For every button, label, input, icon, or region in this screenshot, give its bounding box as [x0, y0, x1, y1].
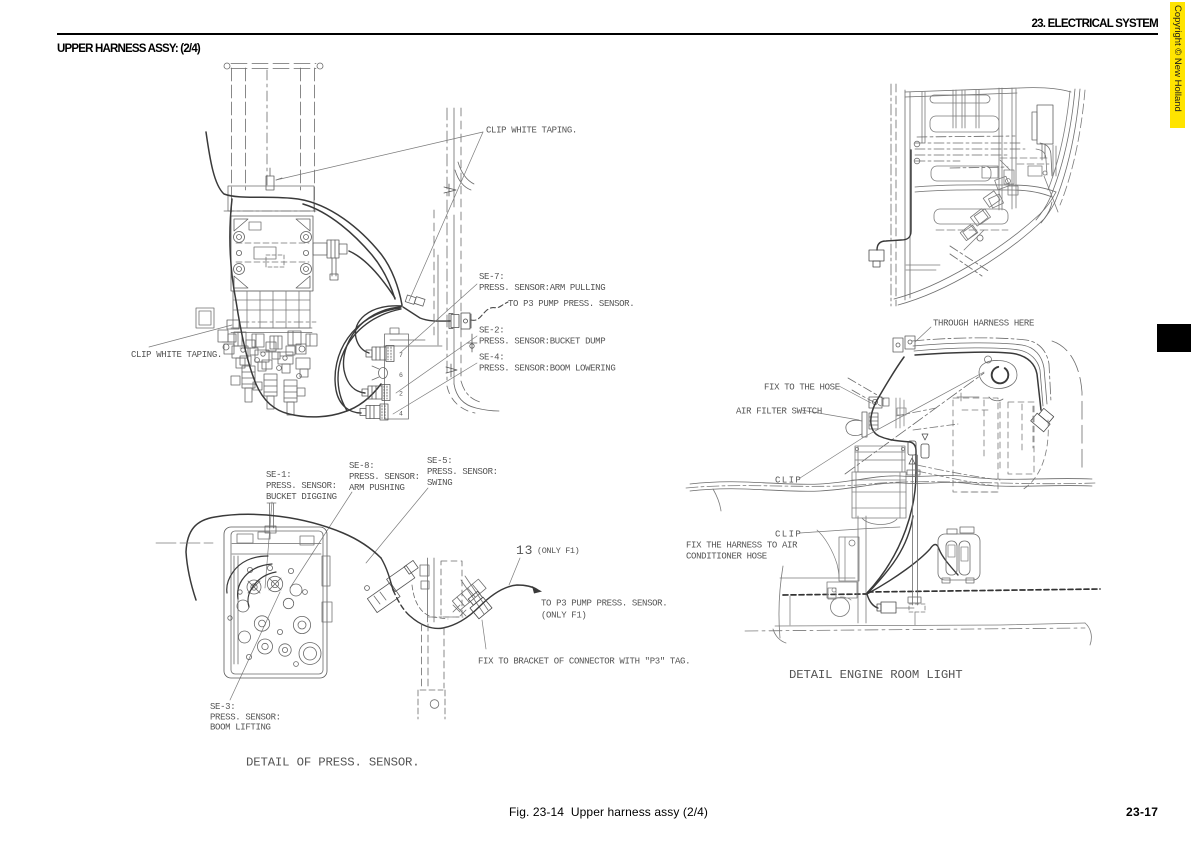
- svg-text:CONDITIONER HOSE: CONDITIONER HOSE: [686, 552, 767, 562]
- svg-text:2: 2: [399, 391, 403, 398]
- svg-text:(ONLY F1): (ONLY F1): [537, 546, 579, 556]
- svg-text:ARM PUSHING: ARM PUSHING: [349, 483, 405, 493]
- svg-text:CLIP WHITE TAPING.: CLIP WHITE TAPING.: [131, 350, 222, 360]
- svg-text:PRESS. SENSOR:BUCKET DUMP: PRESS. SENSOR:BUCKET DUMP: [479, 337, 605, 347]
- svg-text:SE-3:: SE-3:: [210, 702, 235, 712]
- svg-text:THROUGH HARNESS HERE: THROUGH HARNESS HERE: [933, 319, 1034, 329]
- svg-text:13: 13: [516, 543, 533, 558]
- svg-text:AIR FILTER SWITCH: AIR FILTER SWITCH: [736, 407, 822, 417]
- svg-text:CLIP WHITE TAPING.: CLIP WHITE TAPING.: [486, 126, 577, 136]
- svg-text:7: 7: [399, 352, 403, 359]
- svg-text:TO P3 PUMP PRESS. SENSOR.: TO P3 PUMP PRESS. SENSOR.: [541, 599, 667, 609]
- svg-text:6: 6: [399, 372, 403, 379]
- svg-text:(ONLY F1): (ONLY F1): [541, 611, 586, 621]
- svg-text:FIX TO BRACKET OF CONNECTOR WI: FIX TO BRACKET OF CONNECTOR WITH ″P3″ TA…: [478, 657, 690, 667]
- svg-text:CLIP: CLIP: [775, 476, 802, 486]
- svg-text:SE-1:: SE-1:: [266, 470, 291, 480]
- svg-text:PRESS. SENSOR:BOOM LOWERING: PRESS. SENSOR:BOOM LOWERING: [479, 364, 615, 374]
- svg-text:SE-5:: SE-5:: [427, 456, 452, 466]
- svg-text:FIX THE HARNESS TO AIR: FIX THE HARNESS TO AIR: [686, 541, 798, 551]
- svg-text:SE-8:: SE-8:: [349, 461, 374, 471]
- svg-text:DETAIL OF PRESS. SENSOR.: DETAIL OF PRESS. SENSOR.: [246, 756, 420, 770]
- svg-text:4: 4: [399, 411, 403, 418]
- svg-text:PRESS. SENSOR:ARM PULLING: PRESS. SENSOR:ARM PULLING: [479, 283, 605, 293]
- svg-text:CLIP: CLIP: [775, 530, 802, 540]
- svg-text:PRESS. SENSOR:: PRESS. SENSOR:: [266, 481, 337, 491]
- svg-text:SE-4:: SE-4:: [479, 353, 504, 363]
- svg-text:DETAIL ENGINE ROOM LIGHT: DETAIL ENGINE ROOM LIGHT: [789, 668, 963, 682]
- svg-text:SE-7:: SE-7:: [479, 272, 504, 282]
- svg-text:SWING: SWING: [427, 478, 452, 488]
- svg-text:BUCKET DIGGING: BUCKET DIGGING: [266, 492, 337, 502]
- svg-text:SE-2:: SE-2:: [479, 326, 504, 336]
- svg-text:BOOM LIFTING: BOOM LIFTING: [210, 723, 271, 733]
- svg-text:FIX TO THE HOSE: FIX TO THE HOSE: [764, 383, 840, 393]
- svg-text:PRESS. SENSOR:: PRESS. SENSOR:: [210, 713, 281, 723]
- svg-text:TO P3 PUMP PRESS. SENSOR.: TO P3 PUMP PRESS. SENSOR.: [508, 299, 634, 309]
- svg-text:PRESS. SENSOR:: PRESS. SENSOR:: [349, 472, 420, 482]
- svg-text:PRESS. SENSOR:: PRESS. SENSOR:: [427, 467, 498, 477]
